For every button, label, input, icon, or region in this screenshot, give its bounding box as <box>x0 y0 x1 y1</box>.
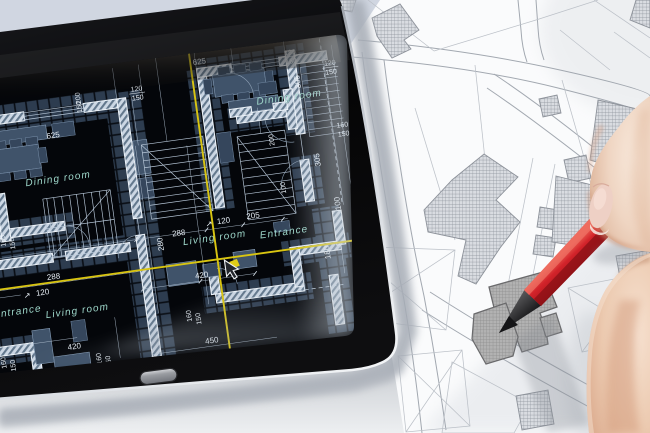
svg-text:205: 205 <box>246 210 261 221</box>
svg-text:625: 625 <box>46 130 61 141</box>
svg-text:280: 280 <box>155 236 166 251</box>
svg-text:288: 288 <box>172 228 187 239</box>
svg-text:420: 420 <box>67 341 82 352</box>
svg-text:120: 120 <box>216 215 231 226</box>
svg-text:↗: ↗ <box>24 291 31 300</box>
svg-text:120: 120 <box>35 287 50 298</box>
svg-text:420: 420 <box>195 270 210 281</box>
